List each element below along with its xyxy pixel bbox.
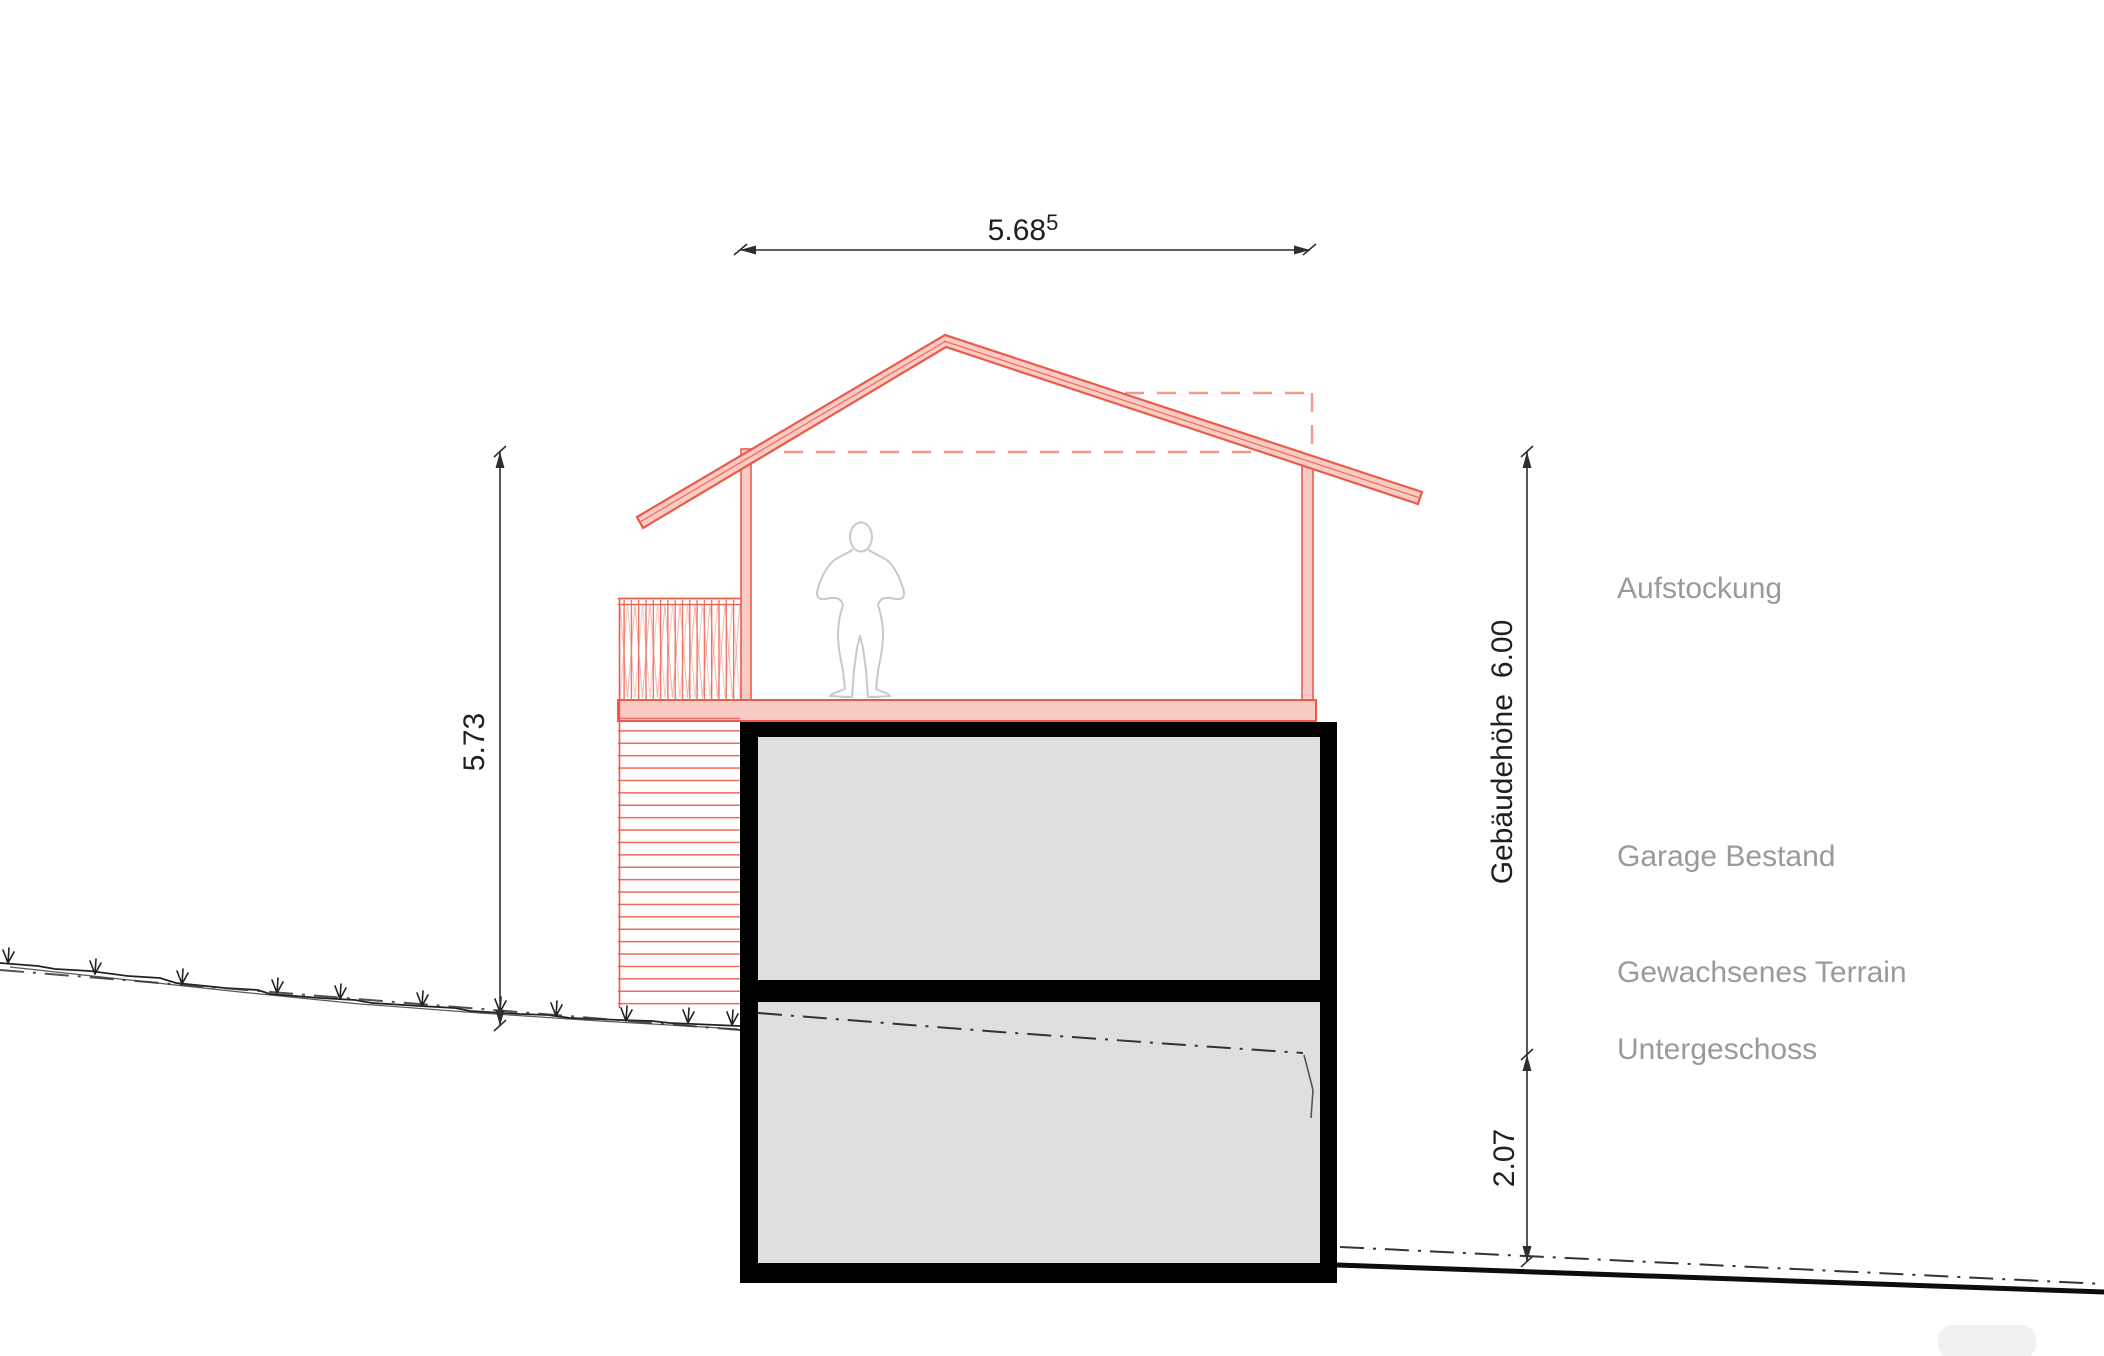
label-untergeschoss: Untergeschoss [1617,1033,1817,1066]
architectural-section-drawing: 5.685 5.73 Gebäudehöhe6.00 2.07 Aufstock… [0,0,2104,1356]
dimension-left-height-label: 5.73 [458,713,491,771]
dimension-basement-height-label: 2.07 [1488,1129,1521,1187]
roof-inner-line-right [944,341,1420,498]
corner-artifact [1938,1325,2036,1356]
dimension-building-height: Gebäudehöhe6.00 2.07 [1486,446,1533,1267]
addition-left-wall [741,449,751,701]
label-garage-bestand: Garage Bestand [1617,840,1835,873]
label-aufstockung: Aufstockung [1617,572,1782,605]
balcony-railing [618,599,741,701]
section-drawing-canvas: 5.685 5.73 Gebäudehöhe6.00 2.07 Aufstock… [0,0,2104,1356]
dimension-building-height-label: Gebäudehöhe6.00 [1486,620,1519,885]
basement-room [758,1002,1320,1263]
existing-building-section [740,722,1337,1283]
label-gewachsenes-terrain: Gewachsenes Terrain [1617,956,1907,989]
person-figure [817,523,904,698]
dimension-top-width: 5.685 [734,210,1316,255]
addition-right-wall [1302,458,1313,701]
dimension-top-width-label: 5.685 [988,210,1059,247]
roof-inner-line-left [640,341,946,522]
dimension-left-height: 5.73 [458,446,506,1031]
annotation-labels: Aufstockung Garage Bestand Gewachsenes T… [1617,572,1907,1066]
terrain-line-right [1337,1247,2104,1292]
garage-room [758,737,1320,980]
